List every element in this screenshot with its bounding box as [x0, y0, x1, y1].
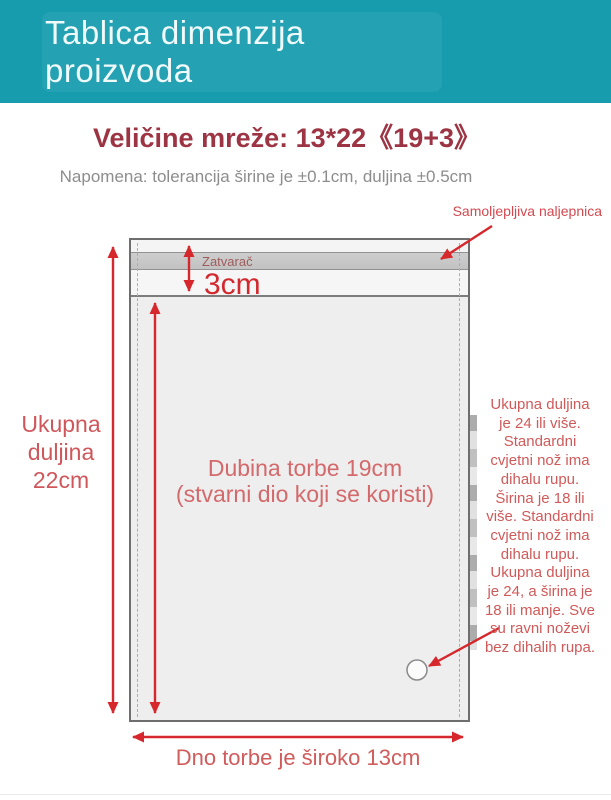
- page-title: Tablica dimenzija proizvoda: [45, 0, 437, 103]
- header-banner: Tablica dimenzija proizvoda: [0, 0, 611, 103]
- product-dimension-page: Tablica dimenzija proizvoda Veličine mre…: [0, 0, 611, 800]
- bottom-divider: [0, 794, 611, 795]
- total-length-label: Ukupna duljina 22cm: [8, 410, 114, 494]
- bag-zipper-band: Zatvarač: [131, 252, 468, 270]
- bag-depth-label: Dubina torbe 19cm (stvarni dio koji se k…: [140, 455, 470, 507]
- mesh-size-title: Veličine mreže: 13*22《19+3》: [0, 116, 574, 155]
- sticker-callout-label: Samoljepljiva naljepnica: [422, 203, 602, 219]
- bag-top-edge: [131, 240, 468, 252]
- flap-height-label: 3cm: [204, 268, 261, 302]
- bag-left-seam-dash: [137, 243, 138, 717]
- bag-flap-region: [131, 270, 468, 297]
- zipper-label: Zatvarač: [202, 254, 253, 269]
- knife-spec-note: Ukupna duljina je 24 ili više. Standardn…: [471, 396, 609, 658]
- bottom-width-label: Dno torbe je široko 13cm: [128, 745, 468, 771]
- tolerance-note: Napomena: tolerancija širine je ±0.1cm, …: [0, 167, 532, 187]
